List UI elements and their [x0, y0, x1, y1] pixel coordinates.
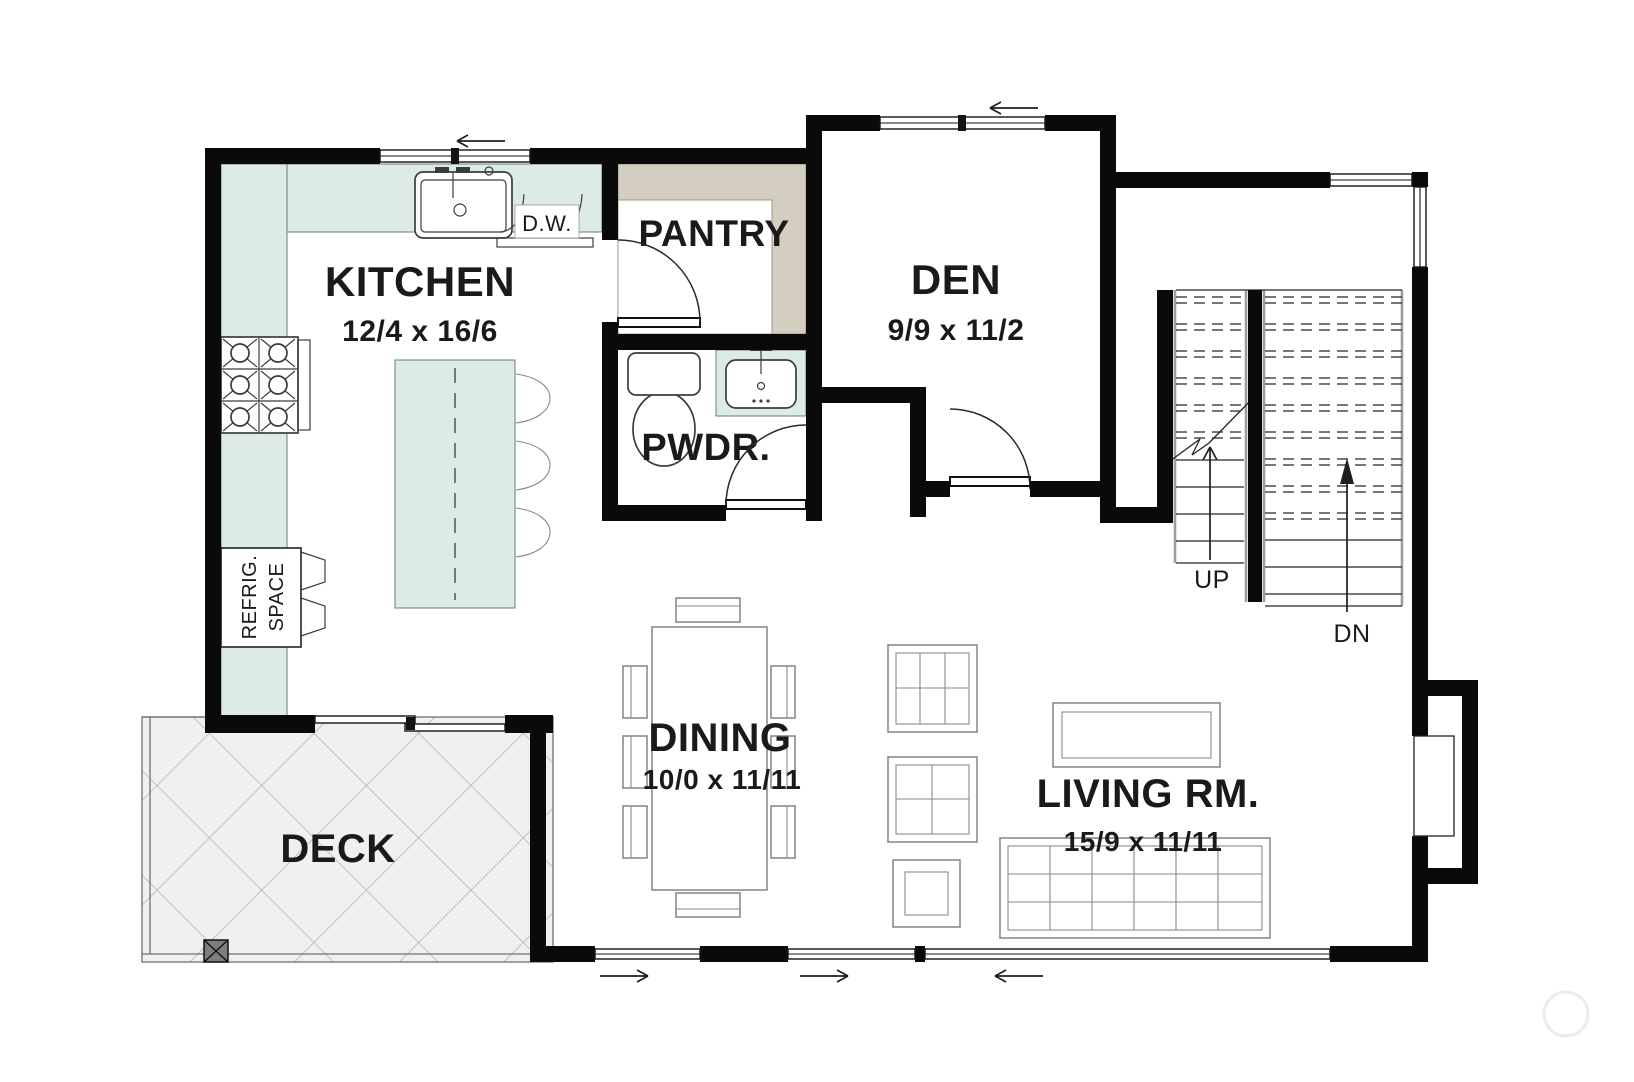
deck-area: DECK	[142, 717, 553, 962]
dining-chair	[676, 598, 740, 622]
dining-chair	[771, 806, 795, 858]
powder-label: PWDR.	[641, 427, 770, 469]
vanity-dot	[752, 399, 755, 402]
fireplace-firebox	[1414, 736, 1454, 836]
window-mullion	[958, 115, 966, 131]
dining-chair	[623, 806, 647, 858]
faucet-handle	[435, 167, 449, 173]
kitchen-sink	[415, 167, 512, 238]
pantry-label: PANTRY	[639, 213, 790, 254]
vanity-dot	[766, 399, 769, 402]
stairs-down-label: DN	[1333, 620, 1370, 648]
burner-icon	[269, 408, 287, 426]
small-table	[893, 860, 960, 927]
range-stove	[221, 337, 310, 433]
burner-icon	[269, 376, 287, 394]
dining-chair	[676, 893, 740, 917]
stairs-up-label: UP	[1194, 566, 1230, 594]
den-dims: 9/9 x 11/2	[888, 314, 1025, 347]
pantry-door-leaf	[618, 318, 700, 327]
burner-icon	[269, 344, 287, 362]
deck-slider-panel	[405, 724, 505, 731]
kitchen-dims: 12/4 x 16/6	[342, 315, 498, 348]
vanity-dot	[759, 399, 762, 402]
refrigerator-label-line2: SPACE	[266, 563, 288, 632]
floor-plan: DECK D.W.	[0, 0, 1634, 1082]
pantry-area: PANTRY	[618, 164, 806, 334]
powder-door-leaf	[726, 500, 806, 509]
burner-icon	[231, 344, 249, 362]
deck-slider-panel	[315, 716, 415, 723]
coffee-table	[1053, 703, 1220, 767]
dining-label: DINING	[649, 716, 792, 760]
refrigerator-box	[221, 548, 301, 647]
faucet-handle	[456, 167, 470, 173]
dining-chair	[771, 666, 795, 718]
dining-dims: 10/0 x 11/11	[643, 764, 802, 795]
dining-chair	[623, 666, 647, 718]
kitchen-label: KITCHEN	[325, 258, 515, 305]
window-mullion	[451, 148, 459, 164]
burner-icon	[231, 408, 249, 426]
den-label: DEN	[911, 256, 1001, 303]
deck-label: DECK	[280, 827, 395, 871]
dishwasher-label: D.W.	[522, 211, 572, 236]
burner-icon	[231, 376, 249, 394]
living-label: LIVING RM.	[1037, 772, 1260, 816]
toilet-tank	[628, 353, 700, 395]
den-door-leaf	[950, 477, 1030, 486]
floor-plan-drawing: DECK D.W.	[0, 0, 1634, 1082]
living-dims: 15/9 x 11/11	[1064, 826, 1223, 857]
refrigerator-label-line1: REFRIG.	[239, 555, 261, 640]
slider-clip	[406, 717, 415, 730]
